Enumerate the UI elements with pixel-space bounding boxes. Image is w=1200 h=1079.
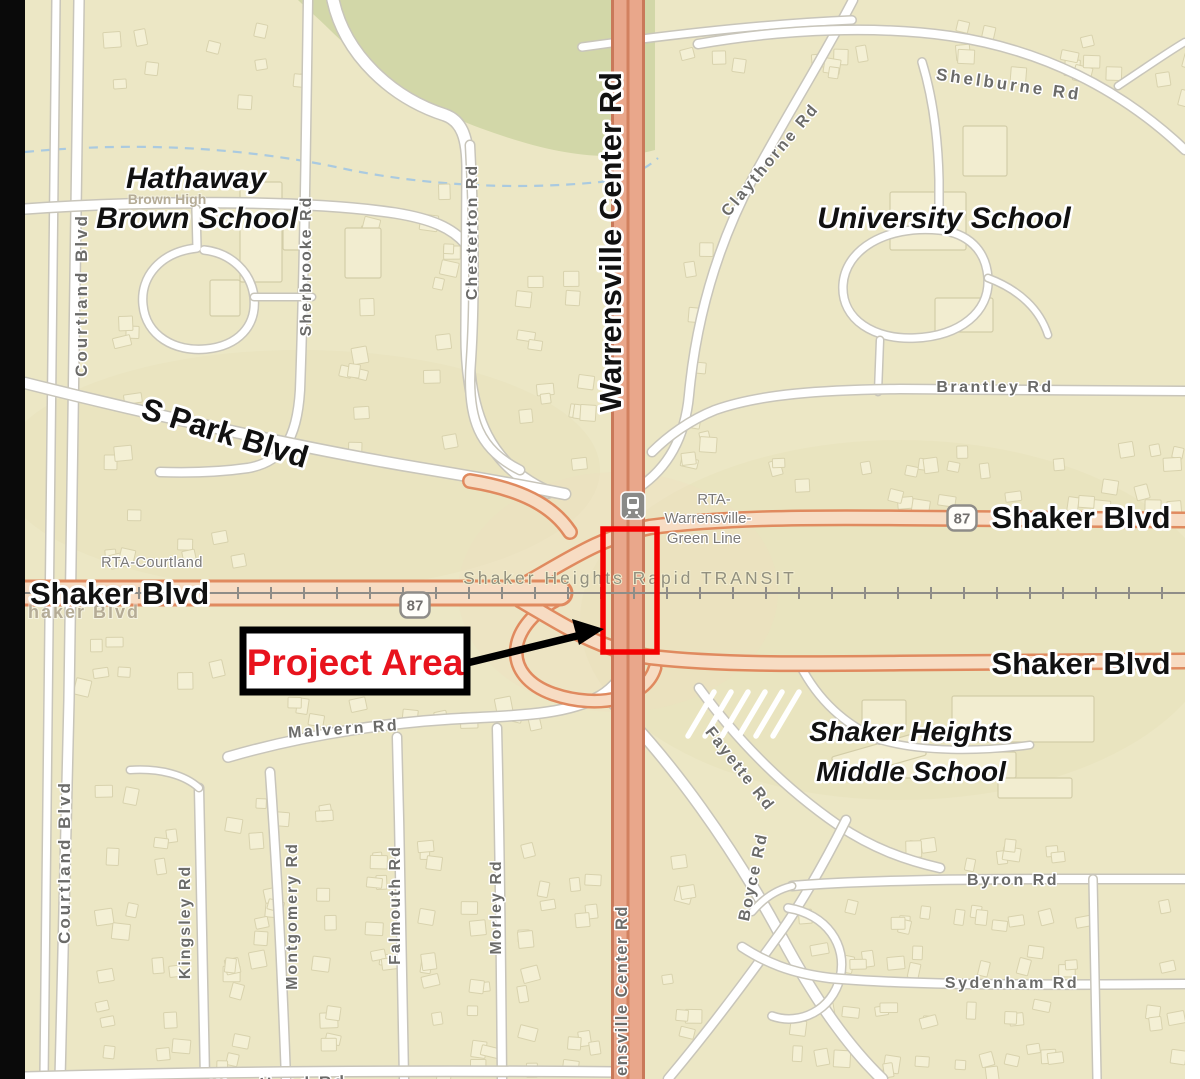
building [772, 458, 785, 468]
building [326, 1006, 342, 1021]
building [113, 79, 126, 89]
building [123, 787, 139, 806]
street-label-brantley: Brantley Rd [936, 379, 1053, 396]
building [225, 817, 243, 833]
building [1004, 1011, 1016, 1024]
building [517, 985, 529, 1003]
building [567, 1037, 581, 1050]
street-label-morley: Morley Rd [488, 859, 505, 954]
black-edge-bar [0, 0, 25, 1079]
building [1027, 945, 1044, 959]
rta-station-icon [621, 492, 645, 519]
label-university-school: University School [817, 202, 1071, 235]
label-warrensville-center-rd: Warrensville Center Rd [593, 72, 628, 412]
building [443, 244, 453, 254]
building [103, 1045, 115, 1059]
building [1134, 484, 1150, 501]
building [923, 457, 939, 474]
building [237, 95, 252, 110]
label-middle-school-line1: Shaker Heights [809, 716, 1013, 747]
building [540, 899, 556, 911]
building [126, 903, 139, 918]
label-shaker-blvd-left: Shaker Blvd [30, 576, 209, 611]
building [888, 488, 904, 503]
building [1155, 72, 1170, 87]
building [585, 874, 602, 886]
building [684, 261, 697, 277]
building [957, 446, 968, 459]
building [349, 697, 367, 713]
street-label-sydenham: Sydenham Rd [945, 975, 1079, 992]
building [134, 29, 148, 47]
building [571, 457, 587, 470]
building [679, 884, 696, 899]
building [178, 539, 193, 550]
building [224, 958, 236, 974]
building [418, 908, 435, 925]
street-label-sherbrooke: Sherbrooke Rd [298, 196, 315, 337]
building [206, 40, 221, 54]
building [1051, 851, 1065, 863]
building [94, 908, 114, 926]
building [915, 1056, 929, 1067]
building [905, 465, 919, 477]
route-shield-87-left: 87 [401, 593, 430, 618]
label-rapid-transit: Shaker Heights Rapid TRANSIT [463, 568, 797, 588]
building [975, 910, 988, 926]
building [676, 1009, 689, 1021]
building [540, 393, 551, 404]
building [311, 956, 330, 972]
building [178, 672, 193, 689]
building [423, 370, 440, 383]
street-label-warrensville-partial: ensville Center Rd [613, 905, 631, 1076]
building [860, 461, 872, 475]
building [887, 956, 905, 970]
building [732, 58, 747, 73]
building [351, 346, 369, 365]
building [537, 881, 550, 898]
building [248, 950, 267, 969]
building [662, 974, 674, 985]
building [114, 445, 133, 461]
street-label-courtland-top: Courtland Blvd [72, 213, 91, 377]
map-canvas: 87 87 Brown High haker Blvd Courtland Bl… [0, 0, 1200, 1079]
label-rta-line1: RTA- [697, 491, 731, 508]
building [814, 1048, 830, 1066]
label-shaker-blvd-upper-right: Shaker Blvd [991, 500, 1170, 535]
building [469, 920, 486, 936]
street-label-kingsley: Kingsley Rd [177, 865, 194, 979]
building [254, 23, 268, 39]
building [256, 798, 267, 808]
building [317, 888, 330, 901]
building [880, 1003, 898, 1013]
building [992, 920, 1008, 932]
building [515, 291, 532, 308]
building [93, 667, 109, 678]
building [700, 243, 714, 257]
building [73, 678, 92, 698]
building [154, 837, 169, 849]
building [842, 1006, 860, 1018]
building [145, 62, 159, 76]
building [528, 276, 543, 287]
building [955, 1060, 966, 1070]
building [912, 946, 922, 960]
building [845, 899, 858, 914]
building [979, 463, 990, 479]
building [954, 909, 965, 925]
building [439, 260, 459, 278]
building [1004, 839, 1016, 852]
building [426, 856, 443, 871]
label-rta-line3: Green Line [667, 530, 741, 547]
building [417, 840, 434, 853]
building [433, 277, 445, 290]
building [712, 51, 726, 65]
building [519, 409, 533, 424]
building [1038, 908, 1054, 925]
building [1026, 1043, 1040, 1054]
building [90, 639, 102, 652]
building [792, 1046, 802, 1062]
map-screenshot: 87 87 Brown High haker Blvd Courtland Bl… [0, 0, 1200, 1079]
building [569, 877, 580, 891]
label-rta-line2: Warrensville- [665, 510, 752, 527]
building [589, 1041, 601, 1055]
building [1101, 479, 1118, 495]
street-label-courtland-bottom: Courtland Blvd [55, 780, 74, 944]
building [467, 1006, 477, 1016]
building [211, 530, 228, 544]
building [469, 979, 485, 994]
building [681, 452, 696, 466]
building [920, 837, 936, 853]
project-area-callout-text: Project Area [247, 642, 464, 683]
building [231, 554, 247, 569]
building [1118, 441, 1134, 458]
building [1149, 444, 1161, 457]
building [1065, 960, 1077, 970]
shield-87-right-text: 87 [954, 511, 971, 528]
building [517, 931, 534, 949]
road-bottom-right-vertical [1093, 879, 1097, 1079]
building [528, 339, 543, 350]
building [956, 20, 970, 33]
building [360, 298, 375, 315]
building [828, 67, 839, 79]
building [966, 1002, 976, 1019]
building [95, 785, 113, 797]
building [850, 959, 867, 969]
building [947, 461, 960, 472]
building [438, 184, 450, 200]
building [106, 637, 123, 647]
project-area-callout: Project Area [243, 630, 467, 692]
building [1149, 1016, 1163, 1031]
building [442, 434, 458, 450]
building [255, 59, 268, 71]
building [431, 1012, 443, 1025]
street-label-chesterton: Chesterton Rd [464, 164, 481, 300]
label-rta-courtland: RTA-Courtland [101, 555, 203, 571]
building [347, 363, 360, 378]
building [564, 271, 579, 286]
building [172, 1039, 191, 1054]
building [119, 316, 133, 331]
building [325, 915, 337, 930]
building [164, 1012, 178, 1028]
route-shield-87-right: 87 [948, 506, 977, 531]
building [106, 848, 119, 865]
building [321, 1038, 336, 1051]
building [127, 510, 141, 521]
label-hathaway-line2: Brown School [96, 202, 298, 235]
building [95, 1000, 109, 1012]
street-label-byron: Byron Rd [967, 872, 1059, 889]
building [1083, 55, 1100, 68]
building [365, 922, 383, 936]
building [1080, 35, 1094, 48]
building [421, 953, 437, 971]
building [152, 957, 164, 973]
building [155, 858, 167, 875]
label-hathaway-line1: Hathaway [126, 162, 267, 195]
shield-87-left-text: 87 [407, 598, 424, 615]
building [435, 334, 451, 350]
building [254, 931, 268, 946]
building [671, 855, 688, 870]
building [97, 968, 115, 983]
building [366, 877, 382, 888]
building [249, 832, 264, 849]
label-shaker-blvd-lower-right: Shaker Blvd [991, 646, 1170, 681]
building [461, 902, 477, 915]
building [103, 31, 121, 48]
building [958, 49, 975, 64]
street-label-falmouth: Falmouth Rd [387, 845, 404, 965]
building [979, 1051, 995, 1067]
building [354, 406, 370, 419]
building [795, 479, 810, 493]
white-edge-strip [1185, 0, 1200, 1079]
building [1170, 1049, 1187, 1065]
building [1008, 915, 1025, 927]
building [370, 855, 387, 869]
building [575, 913, 590, 928]
building [565, 290, 580, 306]
building [315, 810, 333, 821]
building [1053, 458, 1065, 471]
building [1106, 67, 1122, 81]
building [699, 437, 717, 453]
building [920, 906, 931, 920]
label-middle-school-line2: Middle School [816, 756, 1007, 787]
building [1167, 1010, 1186, 1025]
building [1159, 899, 1171, 914]
building [833, 1050, 851, 1068]
building [288, 697, 301, 708]
building [891, 917, 905, 929]
building [856, 45, 869, 62]
building [1047, 1052, 1064, 1065]
building [1004, 1054, 1020, 1067]
building [232, 1034, 250, 1050]
building [111, 923, 130, 941]
building [156, 1047, 170, 1060]
building [118, 667, 131, 677]
building [985, 1066, 999, 1079]
building [964, 858, 975, 872]
street-label-montgomery: Montgomery Rd [284, 842, 301, 990]
building [100, 1016, 115, 1028]
building [254, 916, 269, 929]
building [1163, 457, 1182, 471]
